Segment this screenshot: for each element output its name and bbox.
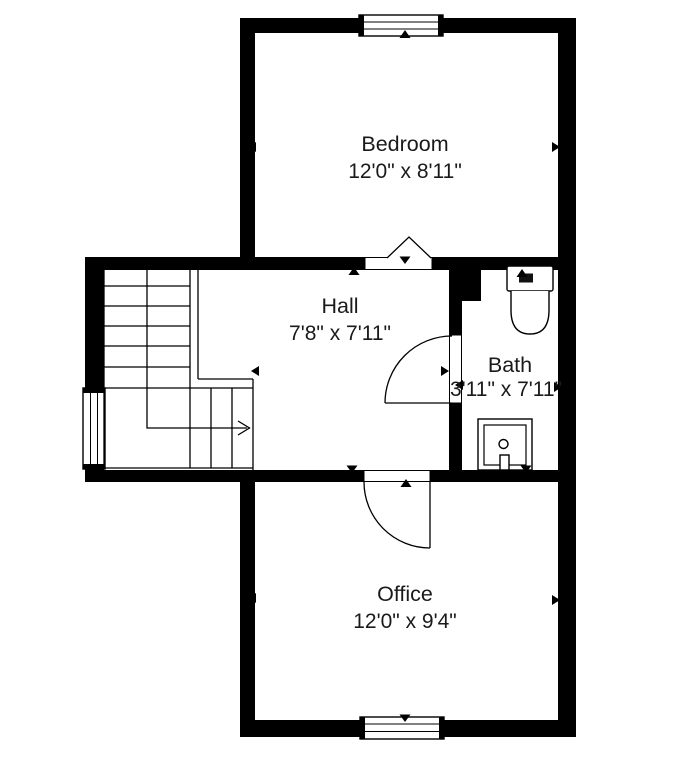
office-dimensions: 12'0" x 9'4" — [353, 610, 457, 633]
door-bedroom-folding-icon — [387, 237, 431, 258]
wall-office-left — [240, 470, 255, 737]
bath-name: Bath — [488, 353, 532, 377]
wall-mid-top-left-segment — [85, 257, 365, 270]
door-hall-office-swing-icon — [364, 482, 430, 548]
floor-plan: Bedroom 12'0" x 8'11" Hall 7'8" x 7'11" … — [0, 0, 681, 768]
staircase-treads-upper — [104, 286, 253, 388]
doors — [364, 237, 452, 548]
sink-icon — [478, 419, 532, 470]
arrow-hall-right-icon — [441, 366, 449, 376]
hall-name: Hall — [321, 294, 358, 318]
floor-plan-drawing: Bedroom 12'0" x 8'11" Hall 7'8" x 7'11" … — [0, 0, 681, 768]
arrow-hall-left-icon — [251, 366, 259, 376]
room-label-bath: Bath 3'11" x 7'11" — [450, 353, 562, 401]
staircase — [104, 268, 253, 470]
door-openings — [364, 258, 462, 482]
office-name: Office — [377, 582, 433, 606]
bath-dimensions: 3'11" x 7'11" — [450, 378, 562, 401]
staircase-outline — [104, 268, 253, 470]
wall-mid-bottom-left-segment — [85, 470, 364, 482]
bedroom-dimensions: 12'0" x 8'11" — [348, 160, 462, 183]
room-label-office: Office 12'0" x 9'4" — [353, 582, 457, 633]
wall-bedroom-left — [240, 18, 255, 270]
toilet-icon — [507, 266, 553, 334]
opening-hall-office — [364, 471, 430, 482]
wall-mid-bottom-right-segment — [430, 470, 576, 482]
window-office-bottom — [360, 717, 444, 739]
window-stairs-left — [83, 388, 105, 469]
hall-dimensions: 7'8" x 7'11" — [289, 322, 391, 345]
opening-bedroom-hall — [365, 258, 432, 270]
door-arc — [364, 482, 430, 548]
room-labels: Bedroom 12'0" x 8'11" Hall 7'8" x 7'11" … — [289, 132, 562, 633]
wall-bath-corner-chunk — [449, 257, 481, 301]
window-bedroom-top — [359, 15, 443, 36]
room-label-bedroom: Bedroom 12'0" x 8'11" — [348, 132, 462, 183]
room-label-hall: Hall 7'8" x 7'11" — [289, 294, 391, 345]
bedroom-name: Bedroom — [361, 132, 448, 156]
